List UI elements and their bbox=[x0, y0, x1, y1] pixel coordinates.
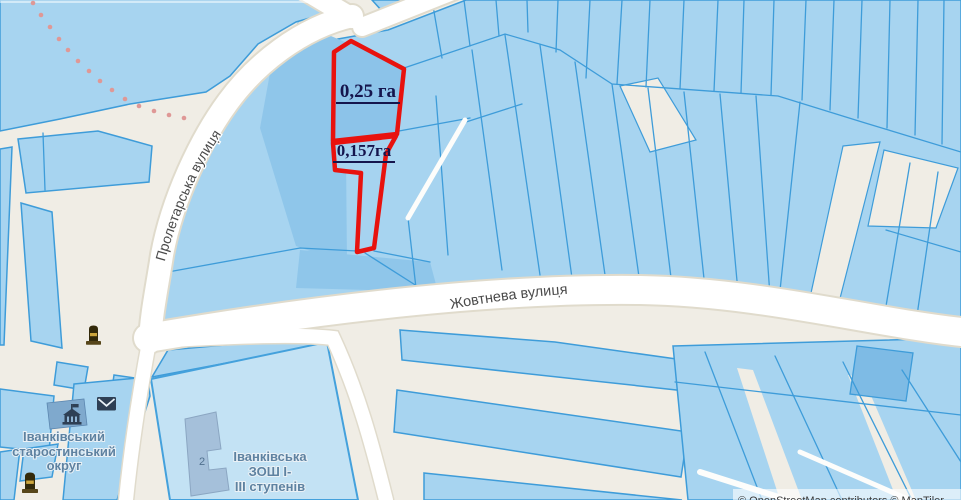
svg-text:Іванківська: Іванківська bbox=[233, 449, 307, 464]
svg-text:ЗОШ І-: ЗОШ І- bbox=[249, 464, 292, 479]
svg-text:округ: округ bbox=[47, 458, 82, 473]
top-edge-strip bbox=[0, 0, 340, 3]
attribution-link[interactable]: © OpenStreetMap contributors © MapTiler bbox=[738, 495, 944, 500]
envelope-icon[interactable] bbox=[97, 397, 116, 411]
area-label-025: 0,25 га bbox=[340, 81, 397, 102]
school-building-number: 2 bbox=[199, 456, 205, 468]
svg-text:старостинський: старостинський bbox=[12, 444, 116, 459]
area-label-0157: 0,157га bbox=[337, 141, 392, 160]
svg-text:ІІІ ступенів: ІІІ ступенів bbox=[235, 479, 305, 494]
map-viewport[interactable]: Пролетарська вулиця Жовтнева вулиця 0,25… bbox=[0, 0, 961, 500]
svg-text:Іванківський: Іванківський bbox=[23, 429, 105, 444]
